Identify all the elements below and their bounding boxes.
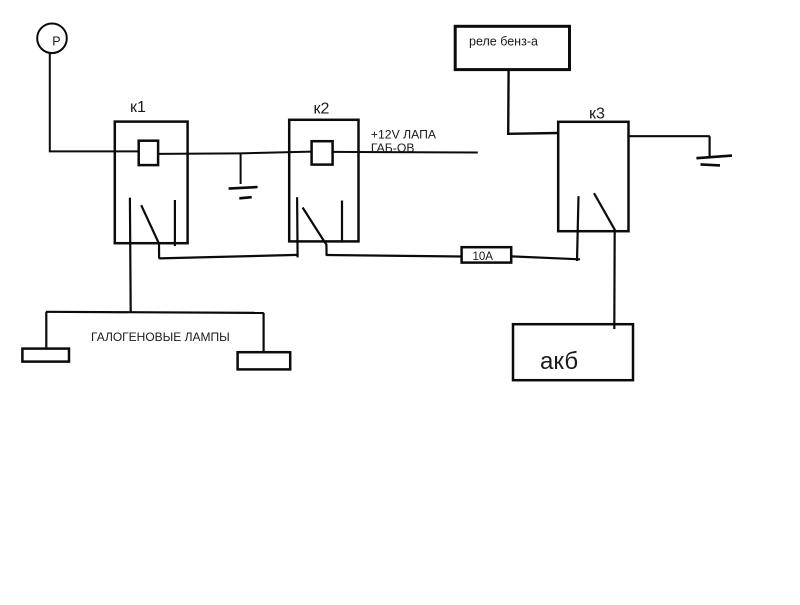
svg-text:10А: 10А: [473, 251, 494, 263]
svg-text:P: P: [52, 35, 60, 49]
svg-text:реле бенз-а: реле бенз-а: [469, 34, 538, 48]
svg-text:ГАБ-ОВ: ГАБ-ОВ: [371, 141, 415, 155]
svg-text:к1: к1: [130, 99, 146, 116]
svg-text:к2: к2: [314, 101, 330, 118]
svg-text:к3: к3: [589, 106, 605, 123]
svg-text:акб: акб: [540, 348, 578, 375]
svg-text:+12V ЛАПА: +12V ЛАПА: [371, 128, 437, 142]
svg-text:ГАЛОГЕНОВЫЕ ЛАМПЫ: ГАЛОГЕНОВЫЕ ЛАМПЫ: [91, 330, 230, 344]
